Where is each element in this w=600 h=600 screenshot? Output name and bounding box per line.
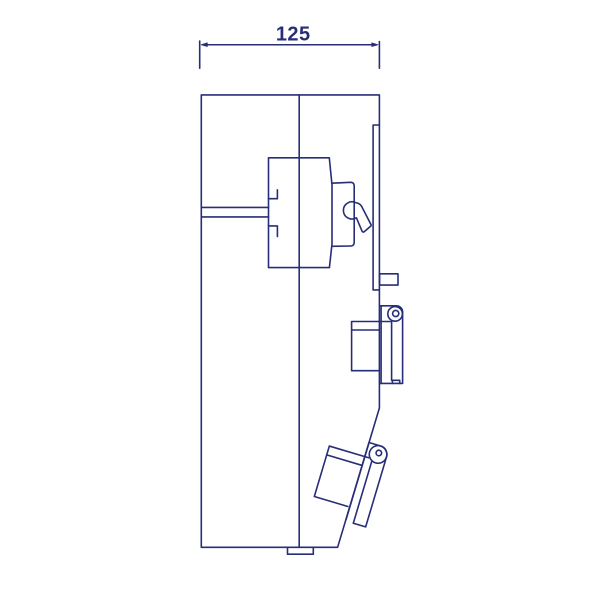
svg-text:125: 125 bbox=[276, 24, 311, 46]
